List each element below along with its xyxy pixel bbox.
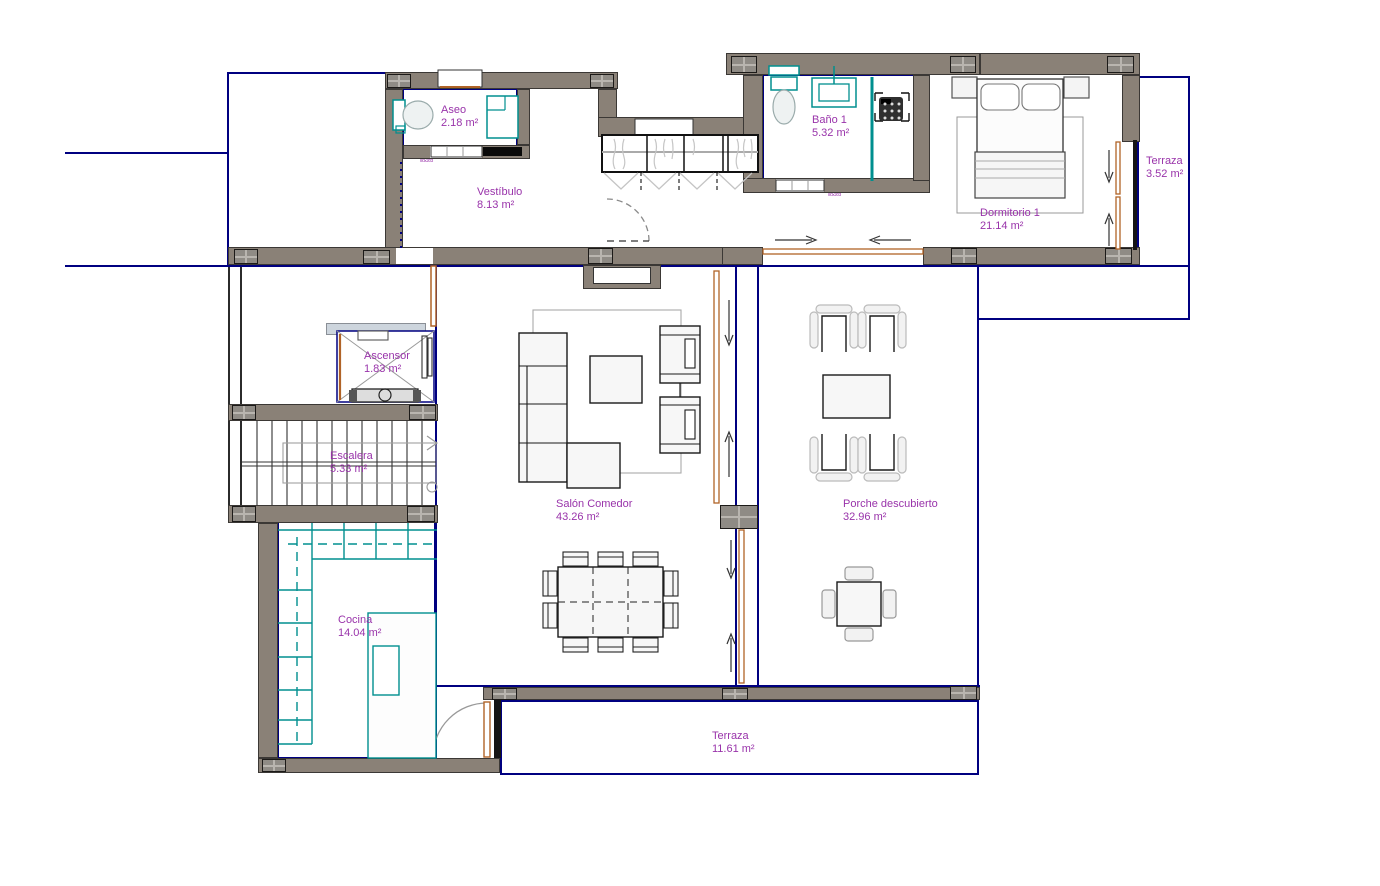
room-label-terraza-1: Terraza3.52 m² (1146, 155, 1183, 180)
column (950, 56, 976, 73)
column (722, 688, 748, 700)
wall-segment (1122, 75, 1140, 142)
room-label-cocina: Cocina14.04 m² (338, 614, 381, 639)
swing-door (433, 700, 501, 758)
porch-table-set (822, 567, 896, 641)
thin-wall (228, 267, 242, 505)
boundary-line (500, 773, 978, 775)
boundary-line (228, 72, 390, 74)
kitchen-floor-outline (278, 522, 435, 758)
column (262, 759, 286, 772)
column (232, 506, 256, 522)
wall-niche-recess (593, 267, 651, 284)
boundary-line (977, 318, 1190, 320)
room-label-porche: Porche descubierto32.96 m² (843, 498, 938, 523)
boundary-line (1188, 76, 1190, 320)
door-size-annotation: 80x203 (420, 159, 433, 164)
swing-door-dashed (607, 199, 649, 241)
column (1107, 56, 1134, 73)
wall-segment (913, 75, 930, 181)
dining-table (543, 552, 678, 652)
room-label-salon-comedor: Salón Comedor43.26 m² (556, 498, 632, 523)
door-size-annotation: 80x203 (828, 193, 841, 198)
wardrobe (602, 135, 758, 190)
column (232, 405, 256, 420)
bed (952, 77, 1089, 213)
room-label-escalera: Escalera5.33 m² (330, 450, 373, 475)
column (731, 56, 757, 73)
door-opening (396, 248, 433, 264)
wall-segment (385, 89, 403, 265)
column (387, 74, 411, 88)
boundary-line (735, 267, 737, 687)
room-label-aseo: Aseo2.18 m² (441, 104, 478, 129)
door-opening (776, 179, 824, 192)
room-label-terraza-2: Terraza11.61 m² (712, 730, 755, 755)
boundary-line (65, 265, 230, 267)
column (409, 405, 436, 420)
room-label-vestibulo: Vestíbulo8.13 m² (477, 186, 522, 211)
door-opening (430, 146, 482, 158)
wall-segment (258, 523, 278, 758)
room-label-ascensor: Ascensor1.83 m² (364, 350, 410, 375)
wall-segment (598, 89, 617, 119)
column (407, 506, 435, 522)
floor-plan: Aseo2.18 m² Vestíbulo8.13 m² Baño 15.32 … (0, 0, 1380, 886)
column (234, 249, 258, 264)
wall-segment (228, 247, 723, 265)
boundary-line (500, 700, 978, 702)
pier (720, 505, 758, 529)
living-room-furniture (519, 310, 700, 488)
column (492, 688, 517, 700)
sliding-door (763, 236, 923, 254)
boundary-line (757, 267, 759, 687)
wall-segment (385, 72, 618, 89)
room-label-dormitorio-1: Dormitorio 121.14 m² (980, 207, 1040, 232)
wall-segment (743, 75, 763, 181)
boundary-line (228, 265, 1190, 267)
sliding-door (1105, 140, 1137, 250)
wall-segment (598, 117, 745, 137)
porch-lounge-set (810, 305, 906, 481)
column (588, 248, 613, 264)
column (951, 248, 977, 264)
wall-segment (726, 53, 980, 75)
room-label-bano-1: Baño 15.32 m² (812, 114, 849, 139)
sliding-door (714, 271, 744, 683)
boundary-line (65, 152, 228, 154)
column (1105, 248, 1132, 264)
wall-segment (517, 89, 530, 145)
boundary-line (1137, 76, 1190, 78)
column (950, 686, 977, 700)
boundary-line (500, 702, 502, 775)
column (590, 74, 614, 88)
boundary-line (227, 72, 229, 267)
wall-segment (743, 178, 930, 193)
wall-segment (228, 404, 438, 421)
elevator-lintel (326, 323, 426, 335)
wall-segment (258, 758, 500, 773)
column (363, 250, 390, 264)
